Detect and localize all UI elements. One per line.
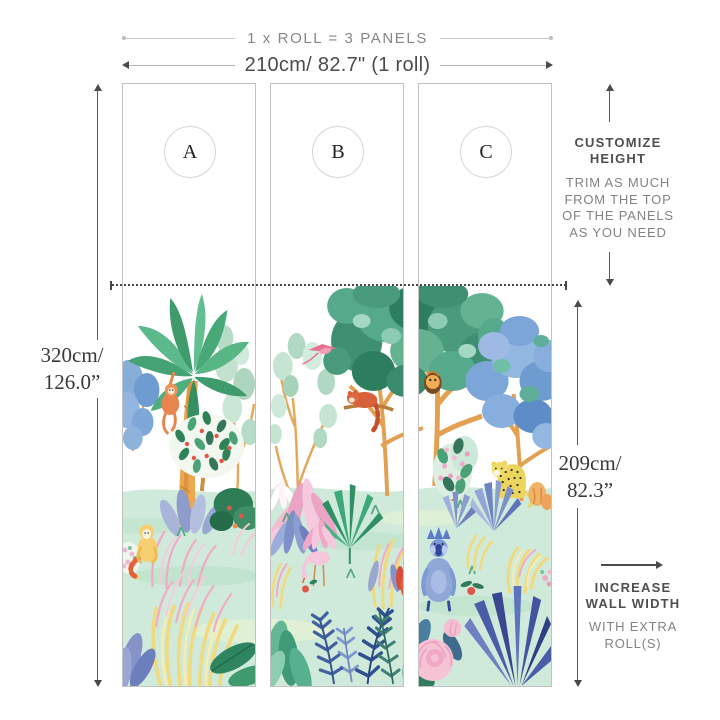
trim-line-right-tick xyxy=(565,281,567,290)
increase-arrow-line xyxy=(601,564,656,566)
roll-width-label: 210cm/ 82.7" (1 roll) xyxy=(235,54,441,77)
dimension-line xyxy=(126,38,235,39)
panel-b-artwork xyxy=(271,286,403,686)
trim-dotted-line xyxy=(112,284,566,286)
panel-a: A xyxy=(122,83,256,687)
roll-equation-dimension: 1 x ROLL = 3 PANELS xyxy=(122,30,553,46)
dimension-line xyxy=(440,65,546,66)
arrow-down-icon xyxy=(574,680,582,687)
arrow-up-icon xyxy=(606,84,614,91)
wall-height-line-upper xyxy=(97,91,98,340)
customize-arrow-line-lower xyxy=(609,252,610,279)
customize-height-body: TRIM AS MUCH FROM THE TOP OF THE PANELS … xyxy=(545,175,691,241)
wallpaper-panel-diagram: 1 x ROLL = 3 PANELS 210cm/ 82.7" (1 roll… xyxy=(0,0,720,720)
panel-a-artwork xyxy=(123,286,255,686)
trim-line-left-tick xyxy=(110,281,112,290)
roll-equation-label: 1 x ROLL = 3 PANELS xyxy=(235,30,440,47)
panel-c-artwork xyxy=(419,286,551,686)
panel-b: B xyxy=(270,83,404,687)
wall-height-label: 320cm/ 126.0” xyxy=(22,342,122,396)
arrow-up-icon xyxy=(574,300,582,307)
right-end-tick xyxy=(549,36,553,40)
customize-arrow-line-upper xyxy=(609,91,610,122)
dimension-line xyxy=(440,38,549,39)
increase-width-title: INCREASE WALL WIDTH xyxy=(558,580,708,612)
arrow-down-icon xyxy=(606,279,614,286)
artwork-height-label: 209cm/ 82.3” xyxy=(552,450,628,504)
arrow-right-icon xyxy=(546,61,553,69)
arrow-down-icon xyxy=(94,680,102,687)
arrow-left-icon xyxy=(122,61,129,69)
customize-height-title: CUSTOMIZE HEIGHT xyxy=(545,135,691,167)
increase-width-body: WITH EXTRA ROLL(S) xyxy=(558,619,708,652)
arrow-right-icon xyxy=(656,561,663,569)
panel-c: C xyxy=(418,83,552,687)
panel-label-badge: A xyxy=(164,126,216,178)
roll-width-dimension: 210cm/ 82.7" (1 roll) xyxy=(122,54,553,76)
panel-label-badge: B xyxy=(312,126,364,178)
panel-label-badge: C xyxy=(460,126,512,178)
arrow-up-icon xyxy=(94,84,102,91)
wall-height-line-lower xyxy=(97,398,98,680)
dimension-line xyxy=(129,65,235,66)
artwork-height-line-upper xyxy=(577,307,578,445)
